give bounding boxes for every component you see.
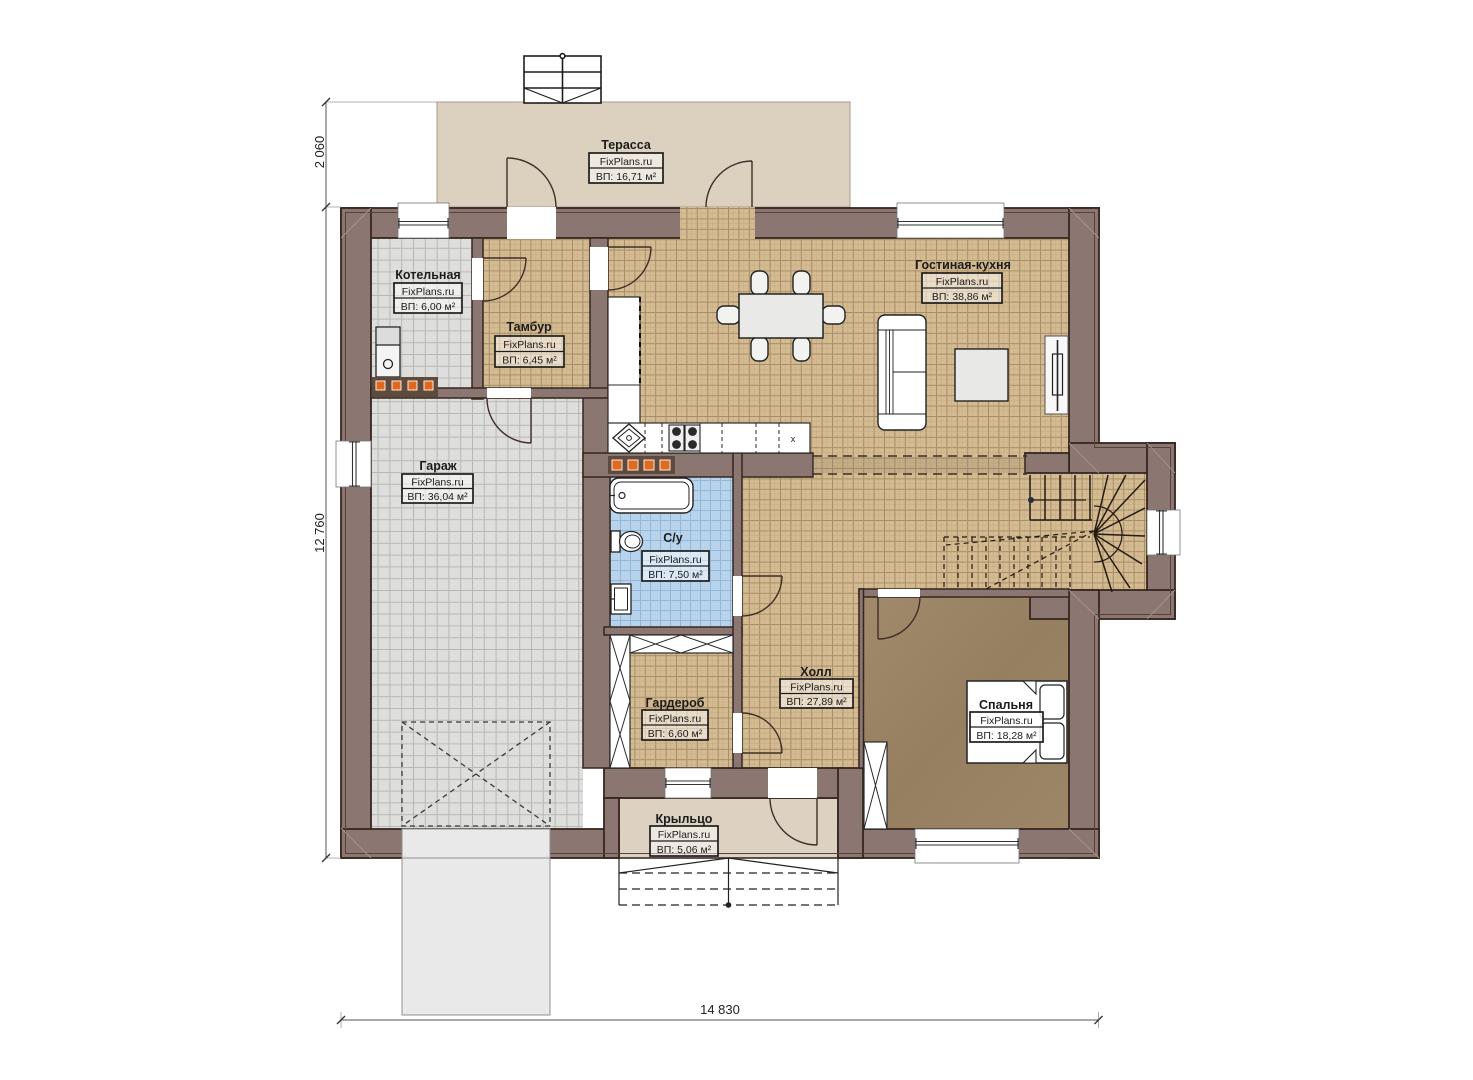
svg-text:12 760: 12 760: [312, 513, 327, 553]
svg-text:С/у: С/у: [663, 531, 683, 545]
svg-text:ВП: 7,50 м²: ВП: 7,50 м²: [648, 569, 703, 581]
svg-text:x: x: [791, 434, 796, 444]
svg-text:ВП: 6,45 м²: ВП: 6,45 м²: [502, 355, 557, 367]
svg-text:FixPlans.ru: FixPlans.ru: [411, 477, 464, 489]
svg-text:FixPlans.ru: FixPlans.ru: [600, 156, 653, 168]
svg-text:ВП: 6,00 м²: ВП: 6,00 м²: [401, 301, 456, 313]
svg-text:Спальня: Спальня: [979, 698, 1033, 712]
svg-text:14 830: 14 830: [700, 1002, 740, 1017]
svg-text:Гардероб: Гардероб: [645, 696, 704, 710]
svg-text:ВП: 5,06 м²: ВП: 5,06 м²: [657, 844, 712, 856]
svg-text:ВП: 18,28 м²: ВП: 18,28 м²: [976, 730, 1037, 742]
svg-text:Терасса: Терасса: [601, 138, 652, 152]
svg-text:Холл: Холл: [800, 665, 831, 679]
svg-text:ВП: 38,86 м²: ВП: 38,86 м²: [932, 291, 993, 303]
svg-text:ВП: 27,89 м²: ВП: 27,89 м²: [786, 696, 847, 708]
svg-text:FixPlans.ru: FixPlans.ru: [649, 713, 702, 725]
svg-text:Гараж: Гараж: [419, 459, 456, 473]
svg-text:FixPlans.ru: FixPlans.ru: [790, 682, 843, 694]
svg-text:2 060: 2 060: [312, 136, 327, 169]
svg-text:Тамбур: Тамбур: [506, 320, 552, 334]
svg-text:ВП: 16,71 м²: ВП: 16,71 м²: [596, 171, 657, 183]
svg-text:Крыльцо: Крыльцо: [656, 812, 713, 826]
svg-text:FixPlans.ru: FixPlans.ru: [980, 715, 1033, 727]
svg-text:FixPlans.ru: FixPlans.ru: [658, 829, 711, 841]
svg-text:FixPlans.ru: FixPlans.ru: [936, 276, 989, 288]
svg-text:Гостиная-кухня: Гостиная-кухня: [915, 258, 1011, 272]
svg-text:FixPlans.ru: FixPlans.ru: [402, 286, 455, 298]
svg-text:Котельная: Котельная: [395, 268, 460, 282]
svg-text:FixPlans.ru: FixPlans.ru: [503, 339, 556, 351]
svg-text:ВП: 36,04 м²: ВП: 36,04 м²: [407, 491, 468, 503]
svg-text:ВП: 6,60 м²: ВП: 6,60 м²: [648, 728, 703, 740]
svg-text:FixPlans.ru: FixPlans.ru: [649, 554, 702, 566]
